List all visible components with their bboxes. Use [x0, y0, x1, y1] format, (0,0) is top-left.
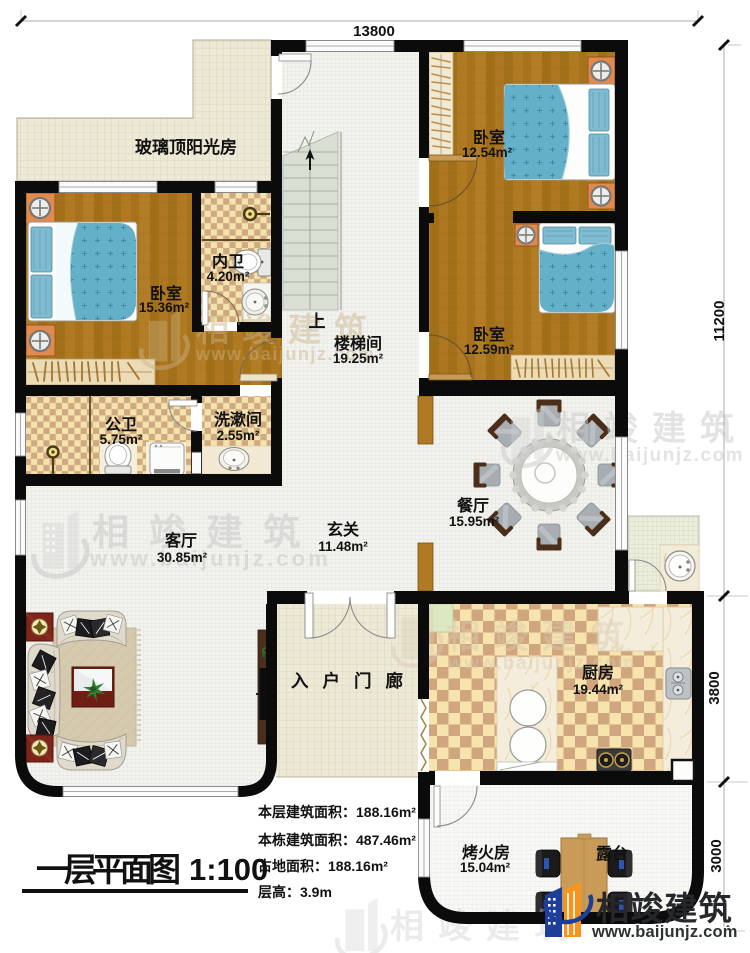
- svg-text:11200: 11200: [711, 301, 728, 342]
- svg-text:3800: 3800: [706, 671, 723, 704]
- svg-text:厨房: 厨房: [582, 663, 614, 682]
- svg-text:本栋建筑面积：487.46m²: 本栋建筑面积：487.46m²: [258, 832, 416, 848]
- svg-text:相竣建筑: 相竣建筑: [596, 890, 733, 927]
- svg-text:本层建筑面积：188.16m²: 本层建筑面积：188.16m²: [258, 804, 416, 820]
- svg-text:13800: 13800: [353, 23, 395, 40]
- svg-text:19.44m²: 19.44m²: [573, 682, 624, 697]
- svg-text:15.36m²: 15.36m²: [139, 300, 190, 315]
- svg-text:12.54m²: 12.54m²: [462, 145, 513, 160]
- svg-text:15.95m²: 15.95m²: [449, 514, 500, 529]
- svg-text:一层平面图: 一层平面图: [36, 851, 179, 888]
- svg-text:5.75m²: 5.75m²: [100, 432, 143, 447]
- svg-text:www.baijunjz.com: www.baijunjz.com: [89, 546, 331, 571]
- svg-text:玻璃顶阳光房: 玻璃顶阳光房: [135, 137, 237, 157]
- svg-text:2.55m²: 2.55m²: [217, 428, 260, 443]
- svg-text:层高：3.9m: 层高：3.9m: [258, 884, 332, 900]
- svg-text:19.25m²: 19.25m²: [333, 351, 384, 366]
- svg-text:餐厅: 餐厅: [456, 496, 489, 515]
- svg-text:www.baijunjz.com: www.baijunjz.com: [555, 445, 744, 466]
- svg-text:15.04m²: 15.04m²: [460, 860, 511, 875]
- svg-text:占地面积：188.16m²: 占地面积：188.16m²: [258, 858, 388, 874]
- svg-text:入户门廊: 入户门廊: [291, 671, 417, 691]
- svg-text:相竣建筑: 相竣建筑: [556, 409, 748, 448]
- svg-text:www.baijunjz.com: www.baijunjz.com: [591, 923, 738, 941]
- svg-text:1:100: 1:100: [189, 852, 268, 887]
- svg-text:相竣建筑: 相竣建筑: [446, 617, 638, 656]
- svg-text:30.85m²: 30.85m²: [157, 550, 208, 565]
- svg-text:上: 上: [309, 312, 326, 331]
- svg-text:11.48m²: 11.48m²: [318, 539, 368, 554]
- svg-text:3000: 3000: [708, 839, 725, 872]
- svg-text:12.59m²: 12.59m²: [464, 342, 515, 357]
- svg-text:4.20m²: 4.20m²: [207, 269, 250, 284]
- svg-text:玄关: 玄关: [327, 520, 359, 539]
- svg-text:洗漱间: 洗漱间: [214, 410, 262, 429]
- svg-text:露台: 露台: [596, 844, 628, 863]
- svg-text:客厅: 客厅: [165, 531, 197, 550]
